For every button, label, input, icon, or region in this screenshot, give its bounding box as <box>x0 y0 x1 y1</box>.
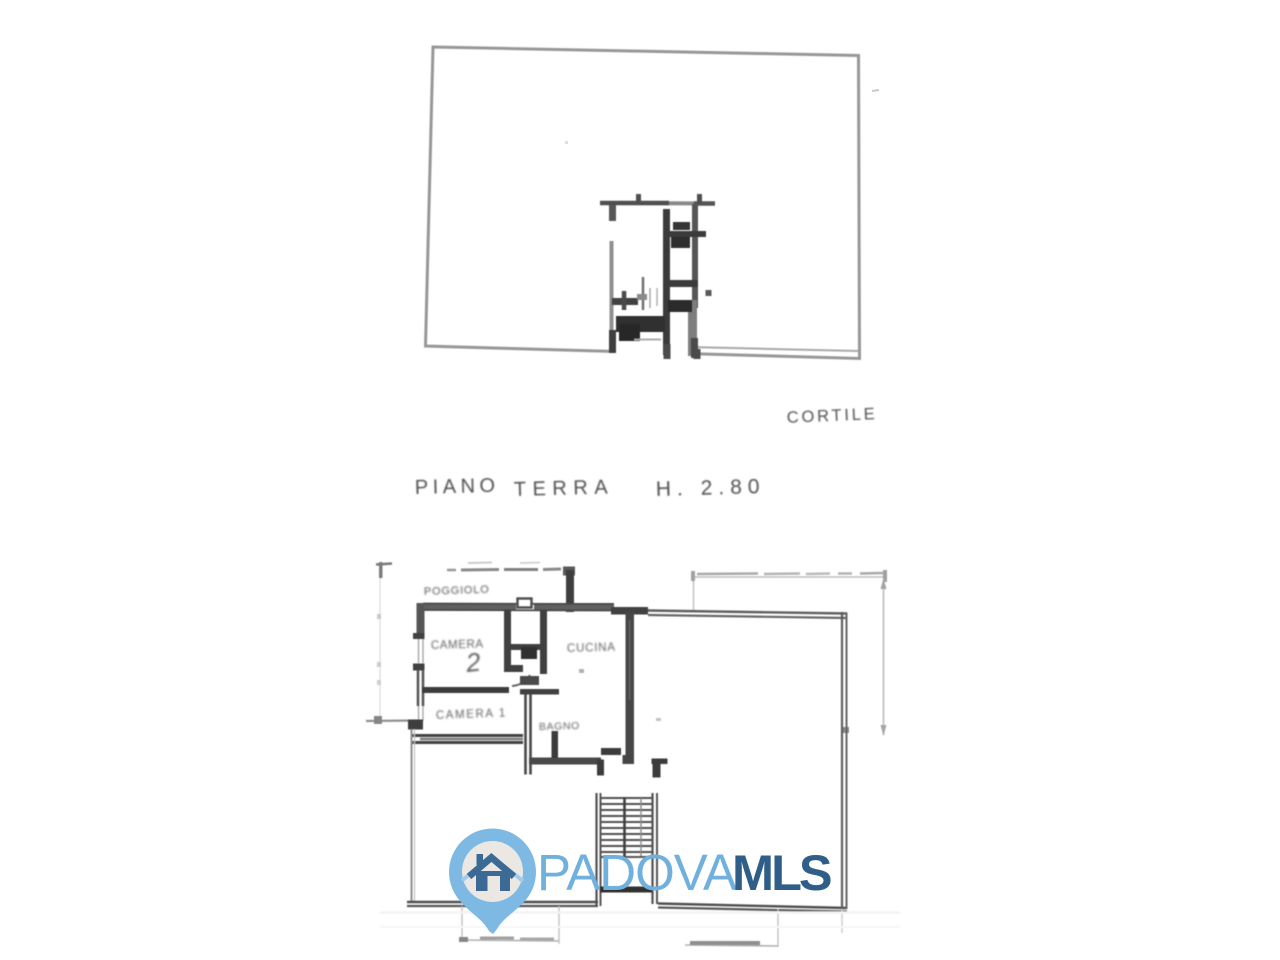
svg-text:POGGIOLO: POGGIOLO <box>424 584 490 598</box>
svg-text:BAGNO: BAGNO <box>539 720 580 733</box>
svg-text:TERRA: TERRA <box>514 476 615 501</box>
svg-text:PADOVA: PADOVA <box>537 844 737 901</box>
svg-text:CUCINA: CUCINA <box>567 642 616 655</box>
svg-text:H. 2.80: H. 2.80 <box>656 475 766 501</box>
svg-text:CAMERA 1: CAMERA 1 <box>436 708 507 722</box>
svg-text:PIANO: PIANO <box>415 475 500 499</box>
svg-text:MLS: MLS <box>732 844 831 901</box>
